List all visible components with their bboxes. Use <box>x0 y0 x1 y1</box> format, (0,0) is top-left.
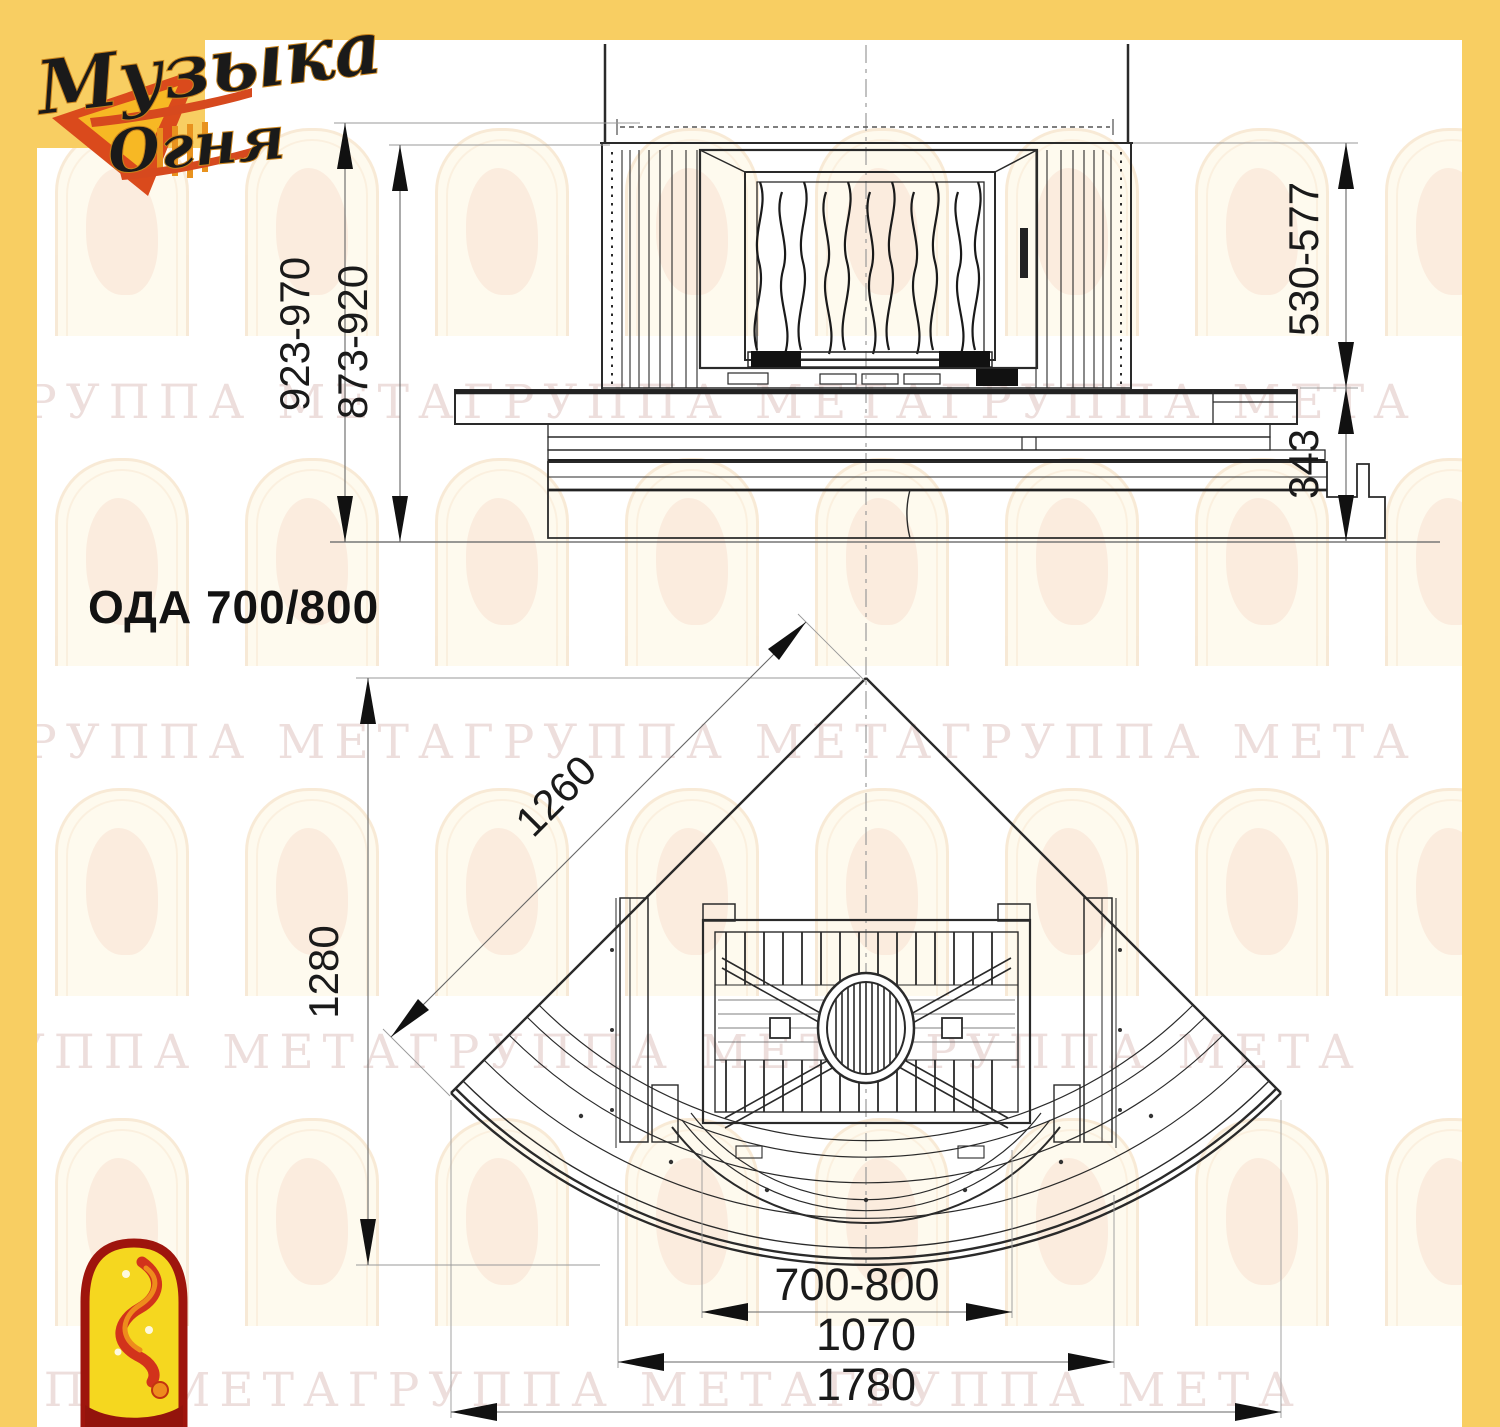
brand-name-line2: Огня <box>105 103 288 188</box>
dim-side-diagonal: 1260 <box>506 746 605 845</box>
dim-body-width: 1070 <box>816 1309 916 1360</box>
page-border-frame <box>0 0 1500 1427</box>
dim-height-inner: 873-920 <box>329 265 376 419</box>
dim-depth: 1280 <box>300 925 347 1018</box>
page-canvas: ГРУППА МЕТАГРУППА МЕТАГРУППА МЕТА ГРУППА… <box>0 0 1500 1427</box>
front-view-dimensions: 923-970 873-920 530-577 343 <box>271 123 1358 542</box>
dim-plinth-height: 343 <box>1280 429 1327 499</box>
front-elevation-view <box>330 44 1440 542</box>
dim-portal-width: 700-800 <box>774 1259 939 1310</box>
dim-firebox-height: 530-577 <box>1280 182 1327 336</box>
brand-emblem <box>85 1243 183 1427</box>
dim-overall-width: 1780 <box>816 1359 916 1410</box>
dim-height-overall: 923-970 <box>271 257 318 411</box>
model-title: ОДА 700/800 <box>88 580 379 634</box>
technical-drawing: Музыка Огня <box>0 0 1500 1427</box>
